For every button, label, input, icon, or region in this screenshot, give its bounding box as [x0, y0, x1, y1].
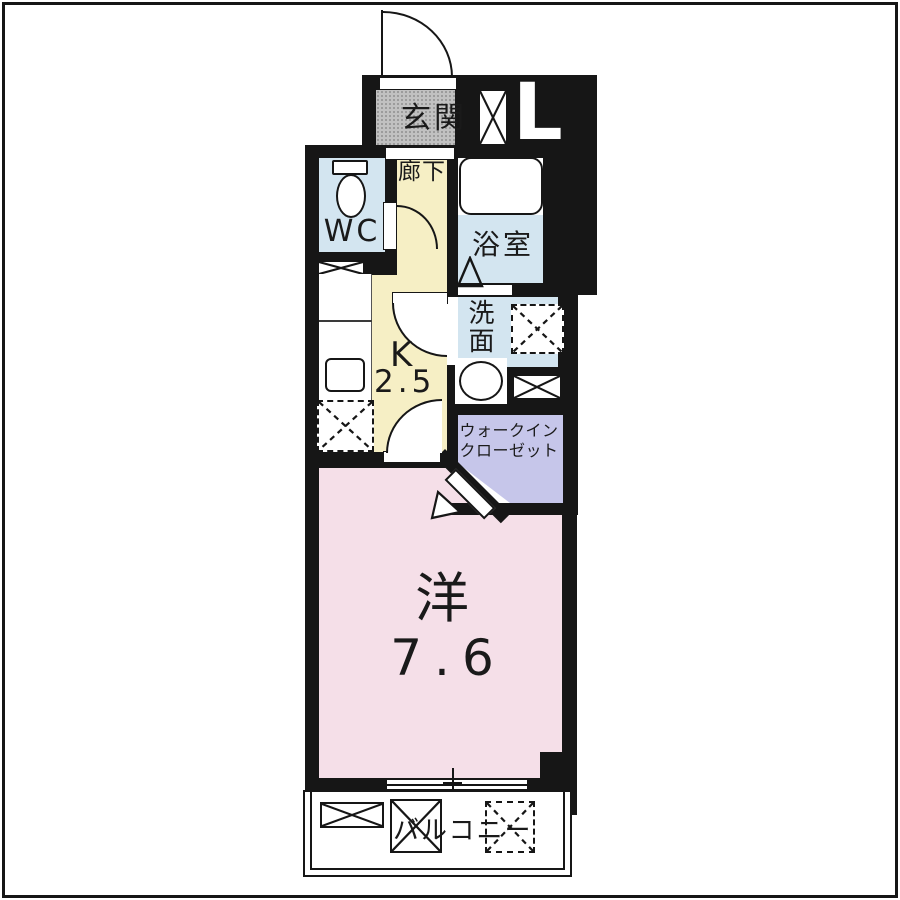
x-mark-icon — [514, 376, 560, 398]
floor-plan: L — [0, 0, 900, 900]
wall-bath-shaft — [543, 148, 597, 295]
x-mark-icon — [487, 803, 533, 851]
x-mark-icon — [319, 262, 363, 274]
hallway-label: 廊下 — [398, 160, 446, 184]
wc-shelf-box — [318, 261, 364, 275]
wall-window-right-patch — [527, 778, 540, 790]
kitchen-size: 2.5 — [374, 366, 435, 399]
wall-closet-right — [563, 415, 578, 515]
x-mark-icon — [322, 804, 382, 826]
door-swing-icon — [430, 490, 464, 522]
window-center-tick-h — [443, 782, 462, 784]
balcony: バルコニー — [303, 790, 572, 877]
room-type-label: 洋 — [372, 570, 512, 628]
balcony-box-middle — [390, 799, 442, 853]
elevator-mark: L — [513, 76, 573, 150]
washbasin — [459, 361, 503, 401]
x-mark-icon — [480, 91, 506, 144]
wall-room-right — [562, 515, 577, 755]
refrigerator-space — [317, 400, 374, 452]
washroom-label: 洗面 — [462, 299, 492, 365]
wall-closet-bottom — [447, 503, 578, 515]
wc-door-leaf — [383, 202, 397, 250]
bathroom-label: 浴室 — [462, 228, 544, 262]
washing-machine-space — [511, 304, 564, 354]
pipe-shaft-box — [478, 89, 508, 146]
balcony-box-left — [320, 802, 384, 828]
entrance-label: 玄関 — [386, 99, 482, 139]
x-mark-icon — [392, 801, 440, 851]
entrance-door-arc — [383, 11, 453, 77]
pipe-space-box — [512, 374, 562, 400]
washroom-doorway — [447, 297, 458, 365]
kitchen-sink — [325, 358, 365, 392]
bathtub — [459, 157, 543, 215]
wc-label: WC — [321, 214, 383, 250]
toilet-bowl — [336, 174, 366, 218]
wall-wc-bottom-patch — [361, 252, 397, 275]
closet-label: ウォークイン クローゼット — [455, 419, 563, 463]
closet-door-swing-mark — [430, 490, 464, 522]
floor-plan-page: { "floorplan": { "entrance": { "label": … — [0, 0, 900, 900]
window-inner-line — [387, 784, 527, 786]
wall-room-bottom-left — [305, 778, 387, 790]
balcony-box-right — [485, 801, 535, 853]
room-size-label: 7.6 — [362, 630, 522, 686]
toilet-tank — [332, 160, 368, 175]
entrance-door-sill — [379, 77, 457, 90]
x-mark-icon — [319, 402, 372, 450]
x-mark-icon — [513, 306, 562, 352]
kitchen-counter-divider — [319, 320, 372, 322]
